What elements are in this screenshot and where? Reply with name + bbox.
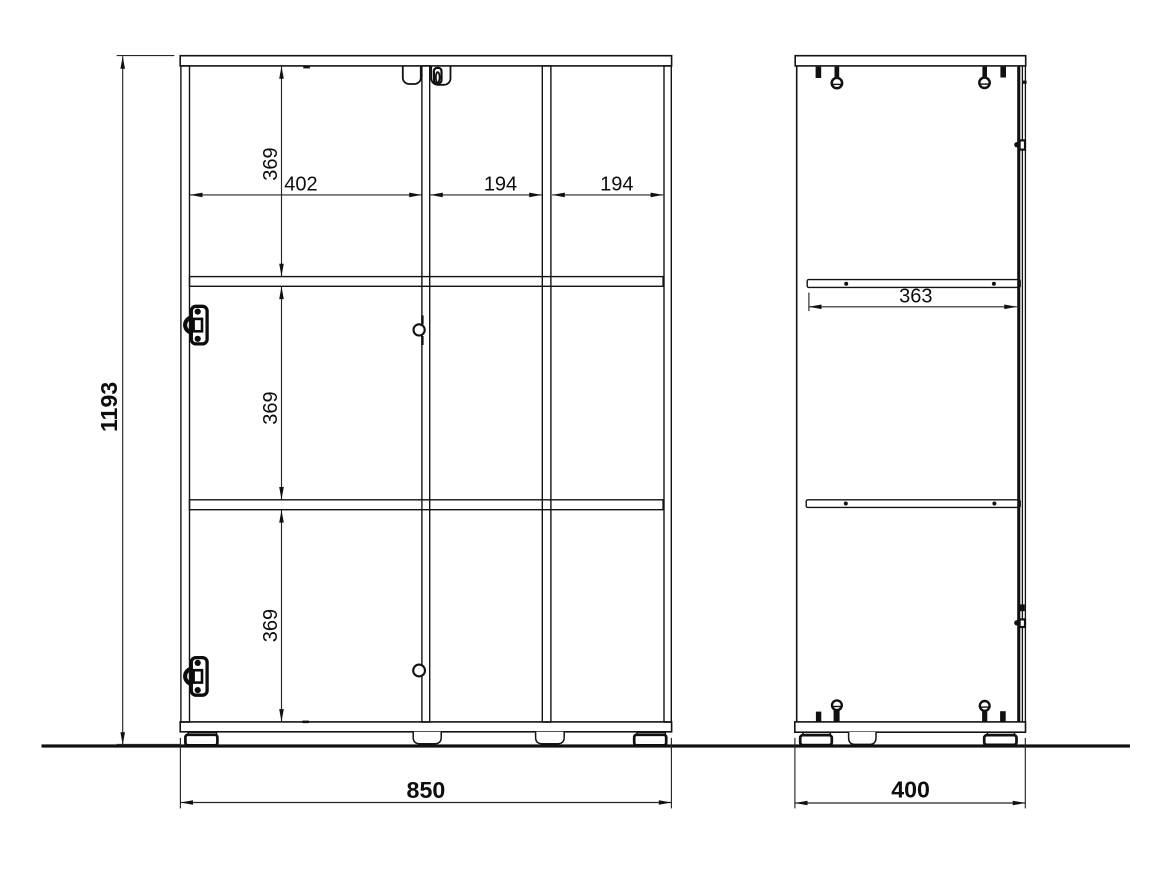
svg-text:363: 363 [899,286,932,308]
svg-text:369: 369 [260,609,282,642]
svg-text:400: 400 [891,776,930,802]
svg-text:194: 194 [600,173,633,195]
svg-text:369: 369 [260,391,282,424]
svg-text:369: 369 [260,147,282,180]
svg-text:194: 194 [484,173,517,195]
svg-text:850: 850 [407,777,446,803]
svg-text:402: 402 [284,174,317,196]
svg-text:1193: 1193 [96,382,122,432]
